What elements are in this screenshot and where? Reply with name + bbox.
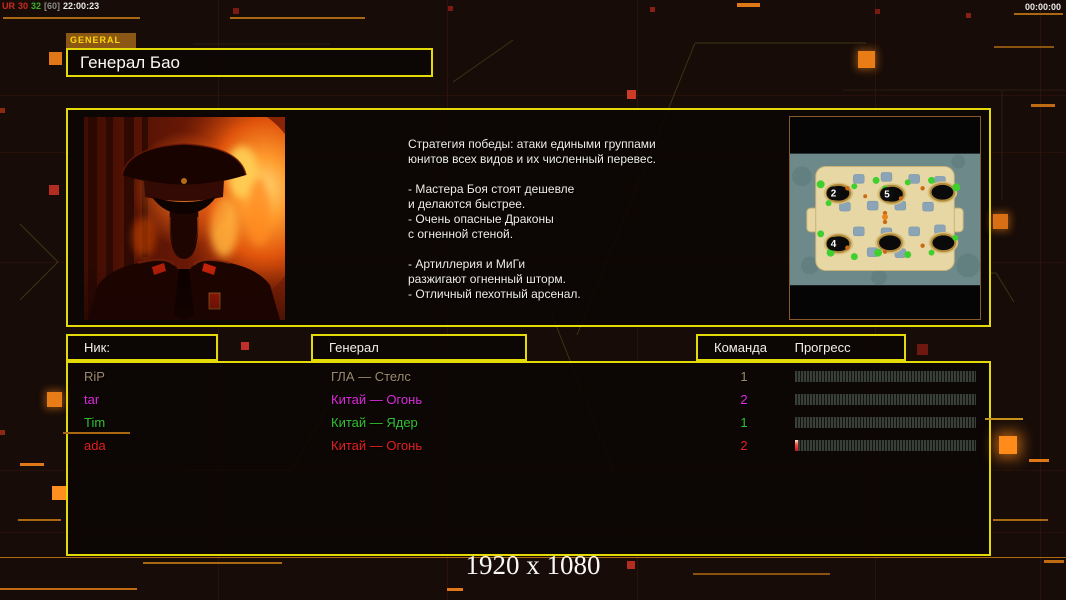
strategy-text: Стратегия победы: атаки едиными группами…	[408, 137, 738, 302]
player-row: tar Китай — Огонь 2	[68, 388, 989, 411]
header-general: Генерал	[311, 334, 527, 361]
strategy-line: - Очень опасные Драконы	[408, 212, 738, 227]
decor-square	[241, 342, 249, 350]
player-team: 1	[730, 365, 758, 388]
decor-line	[994, 46, 1054, 48]
decor-square	[858, 51, 875, 68]
player-nick: ada	[84, 434, 106, 457]
decor-square	[917, 344, 928, 355]
player-row: RiP ГЛА — Стелс 1	[68, 365, 989, 388]
decor-line	[1014, 13, 1063, 15]
decor-line	[993, 519, 1048, 521]
map-image: 2 5 4	[790, 117, 980, 319]
strategy-line: и делаются быстрее.	[408, 197, 738, 212]
status-prefix: UR	[2, 1, 15, 11]
general-tab: GENERAL	[66, 33, 136, 48]
status-overlay: UR3032[60]22:00:23	[2, 1, 102, 11]
decor-line	[985, 418, 1023, 420]
decor-line	[230, 17, 365, 19]
player-general: Китай — Ядер	[331, 411, 418, 434]
player-nick: RiP	[84, 365, 105, 388]
header-team-progress: Команда Прогресс	[696, 334, 906, 361]
player-progress-fill	[795, 440, 798, 451]
status-clock: 22:00:23	[63, 1, 99, 11]
decor-square	[49, 52, 62, 65]
decor-line	[3, 17, 140, 19]
decor-line	[1044, 560, 1064, 563]
decor-square	[627, 561, 635, 569]
strategy-line: юнитов всех видов и их численный перевес…	[408, 152, 738, 167]
strategy-line: - Артиллерия и МиГи	[408, 257, 738, 272]
decor-square	[993, 214, 1008, 229]
decor-line	[447, 588, 463, 591]
player-nick: Tim	[84, 411, 105, 434]
general-info-panel: Стратегия победы: атаки едиными группами…	[66, 108, 991, 327]
decor-square	[627, 90, 636, 99]
player-general: Китай — Огонь	[331, 434, 422, 457]
decor-line	[1029, 459, 1049, 462]
decor-square	[875, 9, 880, 14]
status-value-c: [60]	[44, 1, 60, 11]
strategy-line	[408, 167, 738, 182]
decor-square	[47, 392, 62, 407]
general-portrait	[84, 117, 285, 320]
header-progress: Прогресс	[795, 340, 851, 355]
general-title-box: Генерал Бао	[66, 48, 433, 77]
spawn-number: 2	[831, 189, 837, 200]
match-timer: 00:00:00	[1025, 2, 1061, 12]
decor-square	[966, 13, 971, 18]
header-team: Команда	[714, 340, 767, 355]
player-team: 2	[730, 388, 758, 411]
decor-square	[0, 108, 5, 113]
decor-line	[143, 562, 282, 564]
player-progress-bar	[795, 371, 976, 382]
player-progress-bar	[795, 394, 976, 405]
resolution-label: 1920 x 1080	[0, 550, 1066, 581]
player-progress-bar	[795, 440, 976, 451]
player-team: 2	[730, 434, 758, 457]
strategy-line: - Мастера Боя стоят дешевле	[408, 182, 738, 197]
strategy-line: с огненной стеной.	[408, 227, 738, 242]
decor-square	[49, 185, 59, 195]
decor-line	[0, 588, 137, 590]
map-letterbox	[790, 285, 980, 319]
strategy-line: разжигают огненный шторм.	[408, 272, 738, 287]
status-value-b: 32	[31, 1, 41, 11]
decor-line	[693, 573, 830, 575]
spawn-number: 5	[884, 190, 890, 201]
spawn-number: 4	[831, 239, 837, 250]
player-general: Китай — Огонь	[331, 388, 422, 411]
decor-square	[52, 486, 66, 500]
decor-square	[650, 7, 655, 12]
player-row: Tim Китай — Ядер 1	[68, 411, 989, 434]
decor-square	[448, 6, 453, 11]
decor-line	[18, 519, 61, 521]
vignette	[84, 267, 285, 320]
player-nick: tar	[84, 388, 99, 411]
strategy-line: - Отличный пехотный арсенал.	[408, 287, 738, 302]
player-general: ГЛА — Стелс	[331, 365, 411, 388]
decor-square	[999, 436, 1017, 454]
strategy-line: Стратегия победы: атаки едиными группами	[408, 137, 738, 152]
decor-square	[233, 8, 239, 14]
player-team: 1	[730, 411, 758, 434]
decor-line	[63, 432, 130, 434]
header-nick: Ник:	[66, 334, 218, 361]
decor-line	[1031, 104, 1055, 107]
general-title: Генерал Бао	[68, 50, 431, 75]
decor-line	[737, 3, 760, 7]
strategy-line	[408, 242, 738, 257]
players-panel: RiP ГЛА — Стелс 1 tar Китай — Огонь 2 Ti…	[66, 361, 991, 556]
player-progress-bar	[795, 417, 976, 428]
map-preview: 2 5 4	[789, 116, 981, 320]
decor-line	[20, 463, 44, 466]
status-value-a: 30	[18, 1, 28, 11]
loading-screen: UR3032[60]22:00:23 00:00:00 GENERAL Гене…	[0, 0, 1066, 600]
decor-square	[0, 430, 5, 435]
player-row: ada Китай — Огонь 2	[68, 434, 989, 457]
